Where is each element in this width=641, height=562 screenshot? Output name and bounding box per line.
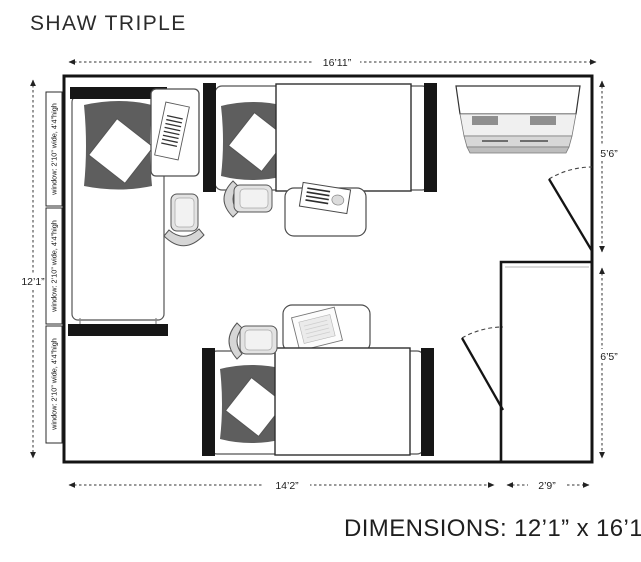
dimension-right-lower: 6’5” [592, 268, 626, 458]
dimension-bottom-closet-label: 2’9” [538, 480, 556, 492]
dimension-left-label: 12’1” [21, 276, 45, 288]
dimension-top-label: 16’11” [323, 57, 352, 69]
dimensions-summary: DIMENSIONS: 12’1” x 16’11” [344, 515, 641, 543]
floor-plan-svg: 16’11” 12’1” 5’6” 6’5” 14’2” 2’9” [0, 0, 641, 562]
dresser-drawer-3 [467, 147, 569, 153]
dimension-right-upper: 5’6” [592, 81, 626, 252]
bed-3-headboard [202, 348, 215, 456]
dimension-bottom-main: 14’2” [69, 478, 494, 492]
window-label-1: window: 2’10” wide, 4’4”high [50, 103, 59, 196]
window-label-2: window: 2’10” wide, 4’4”high [50, 220, 59, 313]
bed-2-footboard [424, 83, 437, 192]
dimension-right-lower-label: 6’5” [600, 351, 618, 363]
bed-2-headboard [203, 83, 216, 192]
dresser-drawer-2 [464, 136, 572, 147]
desk-2-table [276, 84, 411, 191]
dimension-bottom-closet: 2’9” [507, 478, 589, 492]
desk-3-table [275, 348, 410, 455]
window-labels: window: 2’10” wide, 4’4”high window: 2’1… [46, 92, 62, 443]
chair-2 [224, 181, 272, 217]
window-label-3: window: 2’10” wide, 4’4”high [50, 338, 59, 431]
chair-3 [229, 323, 277, 359]
desk-1 [151, 89, 199, 176]
dimension-bottom-main-label: 14’2” [275, 480, 299, 492]
bed-1-footboard [68, 324, 168, 336]
bed-3-footboard [421, 348, 434, 456]
floor-plan-page: SHAW TRIPLE 16’11” 12’1” 5’6” 6’5” [0, 0, 641, 562]
dresser-top [456, 86, 580, 114]
dimension-right-upper-label: 5’6” [600, 148, 618, 160]
dresser [456, 86, 580, 153]
dimension-top: 16’11” [69, 55, 596, 69]
